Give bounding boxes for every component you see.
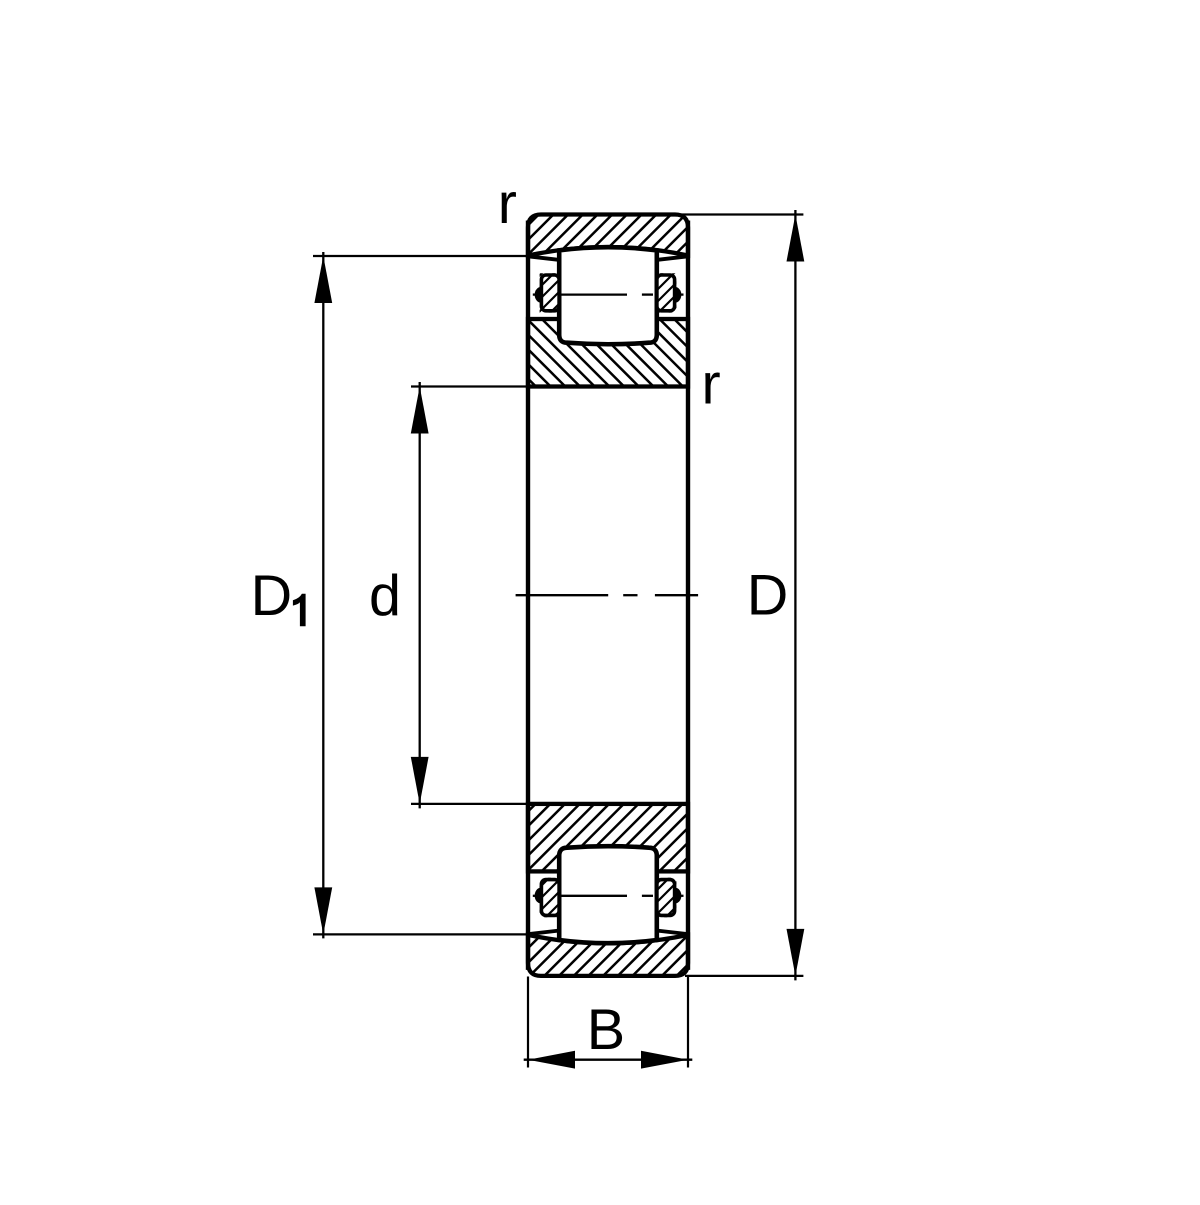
svg-text:r: r <box>498 172 517 236</box>
svg-text:r: r <box>702 353 721 417</box>
svg-text:D: D <box>251 564 293 628</box>
svg-text:D: D <box>747 564 789 628</box>
svg-text:B: B <box>587 998 625 1062</box>
svg-text:d: d <box>369 564 401 628</box>
